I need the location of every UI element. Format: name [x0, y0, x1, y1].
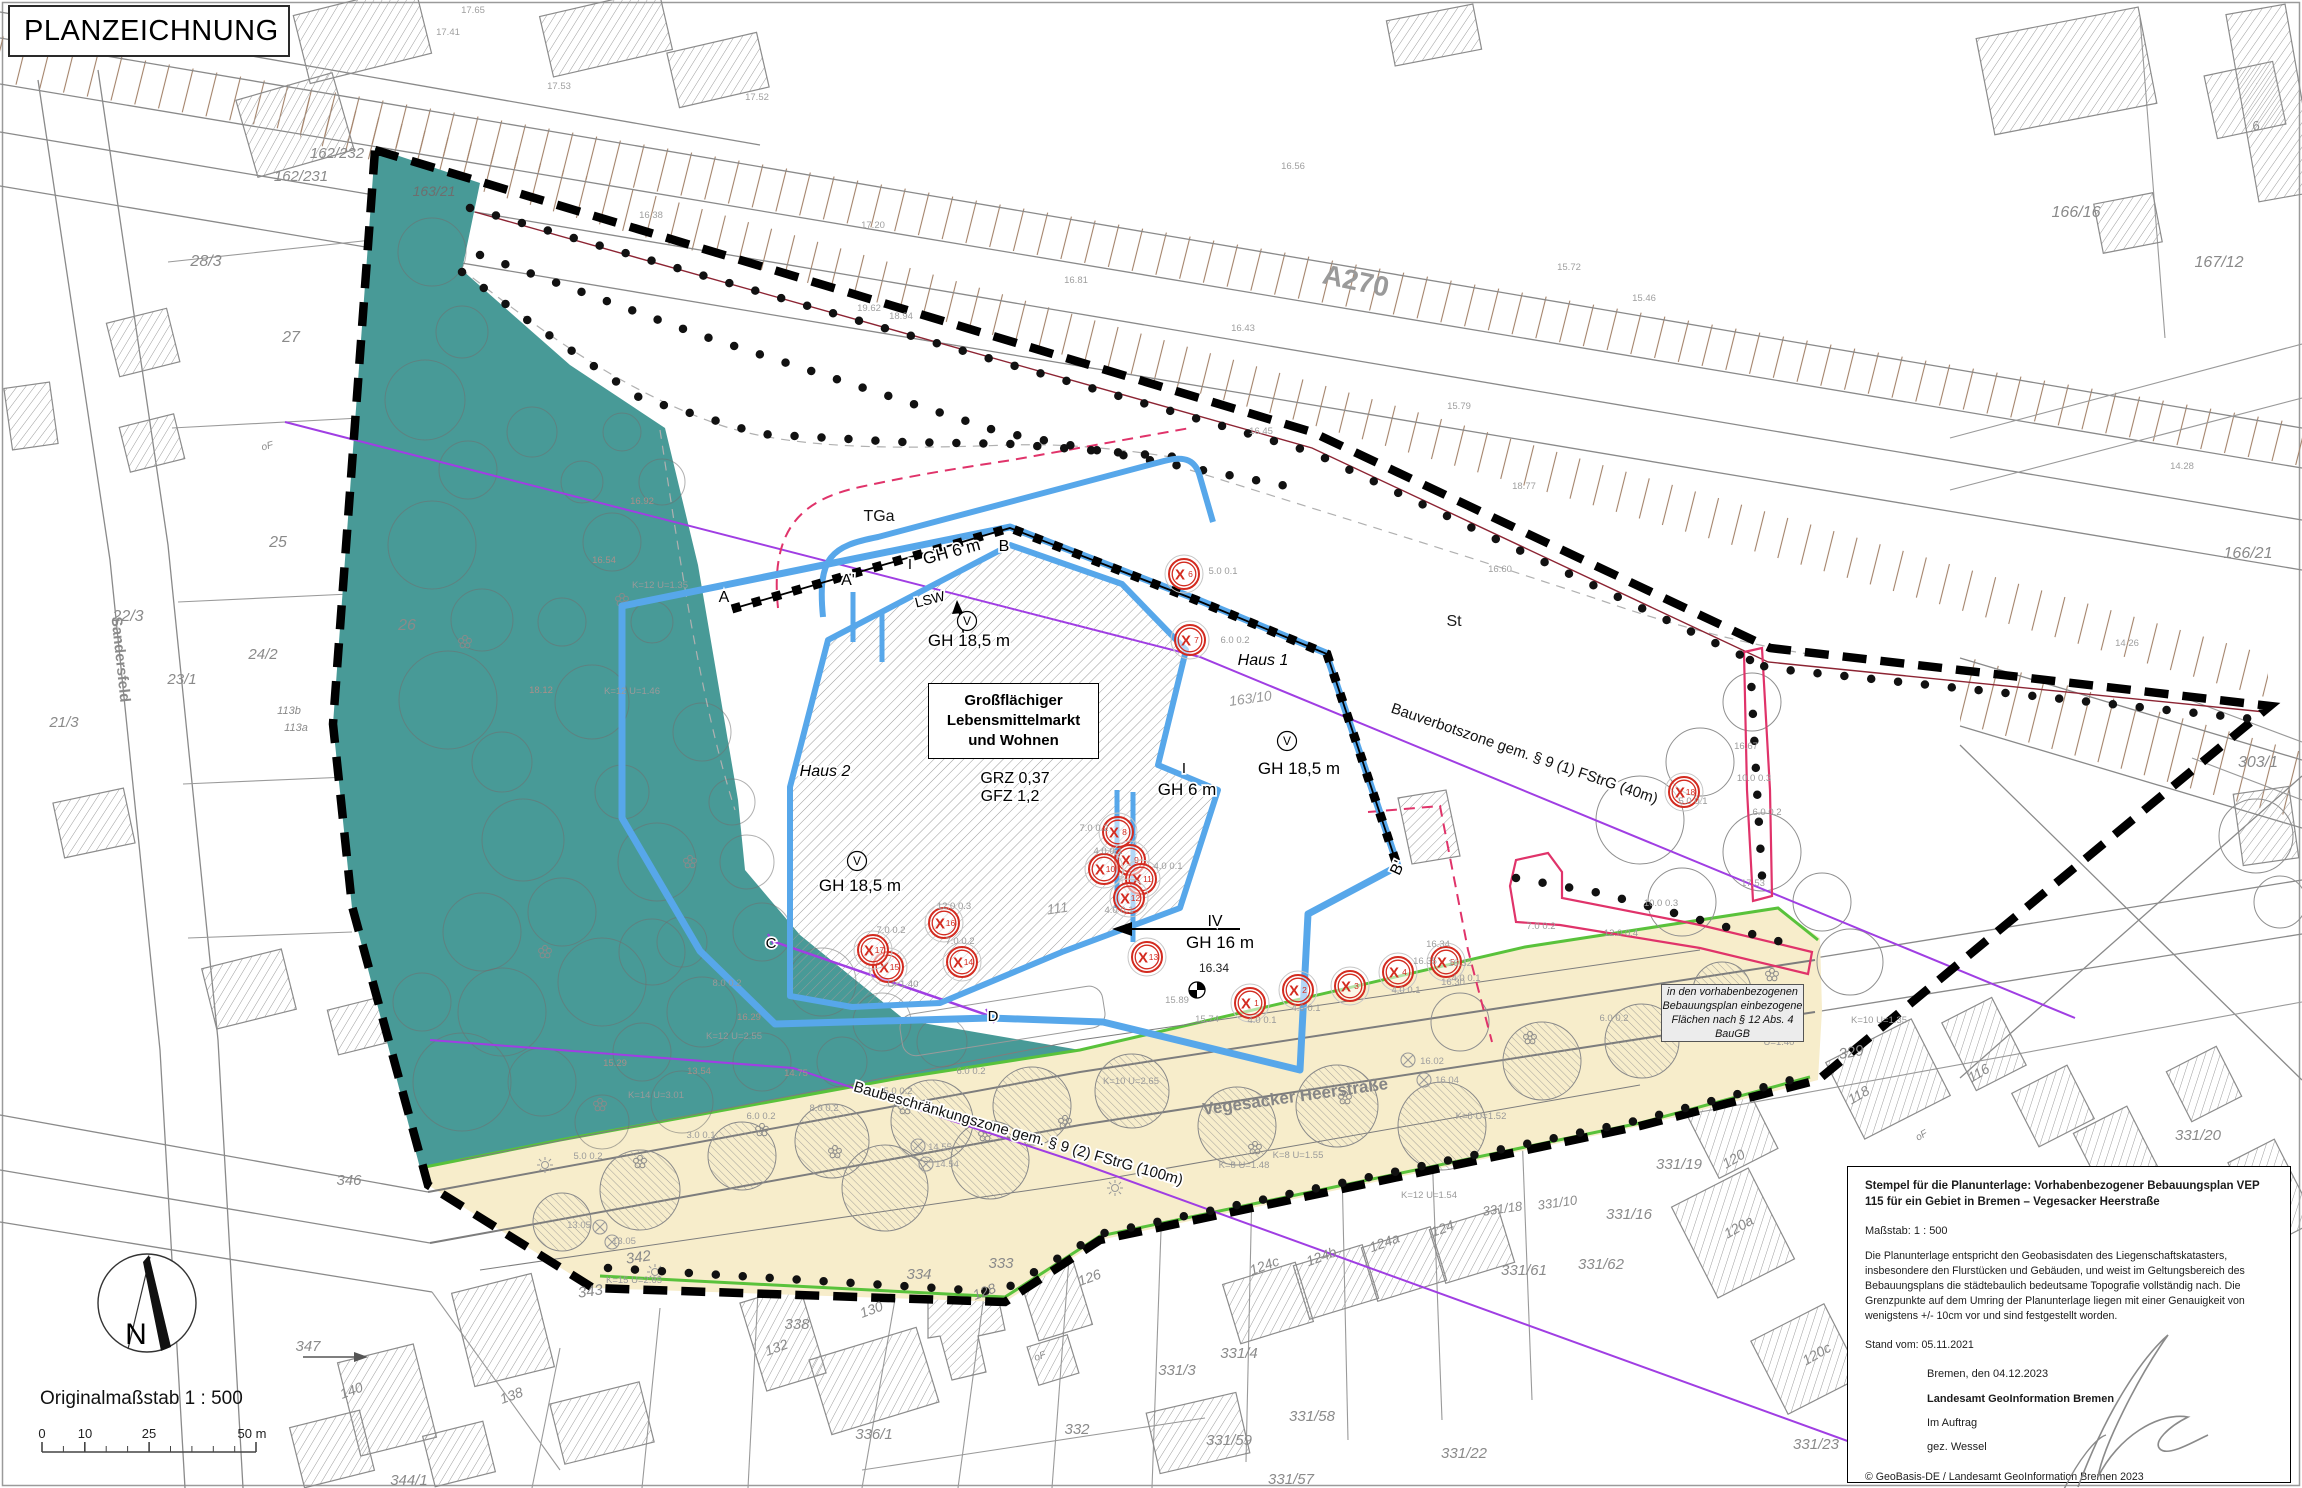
- map-label: 14.54: [935, 1159, 959, 1170]
- map-label: K=12 U=1.46: [604, 686, 660, 697]
- svg-text:X: X: [1389, 965, 1399, 982]
- map-label: GH 18,5 m: [928, 631, 1010, 650]
- map-label: 167/12: [2195, 254, 2244, 271]
- scale-25: 25: [142, 1426, 156, 1441]
- map-label: 331/4: [1220, 1345, 1258, 1362]
- scale-labels: 0 10 25 50 m Originalmaßstab 1 : 500: [38, 1388, 266, 1441]
- svg-text:17: 17: [875, 945, 885, 955]
- stamp-scale: Maßstab: 1 : 500: [1865, 1224, 2273, 1239]
- map-label: C: [766, 935, 777, 952]
- map-label: 13.05: [612, 1236, 636, 1247]
- map-label: 347: [295, 1338, 321, 1355]
- map-label: K=10 U=1.35: [1851, 1015, 1907, 1026]
- svg-text:X: X: [1181, 633, 1191, 650]
- map-label: 7.0 0.2: [945, 936, 974, 947]
- use-label-box: Großflächiger Lebensmittelmarkt und Wohn…: [928, 683, 1099, 759]
- map-label: 16.02: [1420, 1056, 1444, 1067]
- map-label: 12.0 0.4: [1604, 928, 1638, 939]
- svg-text:1: 1: [1254, 998, 1259, 1008]
- map-label: 16.81: [1064, 275, 1088, 286]
- use-label-line2: Lebensmittelmarkt: [929, 711, 1098, 731]
- map-label: 17.53: [547, 81, 571, 92]
- map-label: 113a: [284, 722, 308, 734]
- map-label: 331/58: [1289, 1408, 1336, 1425]
- included-note-line2: Bebauungsplan einbezogene: [1662, 999, 1803, 1013]
- map-label: 338: [784, 1316, 810, 1333]
- map-label: 6.0 0.2: [956, 1066, 985, 1077]
- map-label: 13.05: [567, 1220, 591, 1231]
- map-label: 16.32: [1448, 958, 1472, 969]
- map-label: 7.0 0.2: [1079, 823, 1108, 834]
- map-label: 336/1: [855, 1426, 893, 1443]
- map-label: 15.74: [1195, 1014, 1219, 1025]
- map-label: 3.0 0.1: [686, 1130, 715, 1141]
- map-label: 16.45: [1249, 426, 1273, 437]
- map-label: K=8 U=1.52: [1456, 1111, 1507, 1122]
- map-label: 163/21: [413, 183, 456, 199]
- drawing-title: PLANZEICHNUNG: [24, 15, 279, 48]
- svg-text:2: 2: [1302, 985, 1307, 995]
- map-label: oF: [1914, 1128, 1930, 1144]
- map-label: TGa: [863, 508, 894, 525]
- map-label: 17.20: [861, 220, 885, 231]
- map-label: K=12 U=1.54: [1401, 1190, 1457, 1201]
- map-label: IV: [1207, 913, 1222, 930]
- map-label: K=15 U=2.65: [606, 1275, 662, 1286]
- map-label: oF: [260, 440, 275, 454]
- map-label: 5.0 0.2: [573, 1151, 602, 1162]
- map-label: 23/1: [166, 671, 196, 688]
- map-label: 17.53: [1741, 878, 1765, 889]
- map-label: 162/232: [310, 145, 365, 162]
- svg-text:13: 13: [1149, 952, 1159, 962]
- svg-text:V: V: [963, 614, 971, 628]
- map-label: 18.77: [1512, 481, 1536, 492]
- map-label: 303/1: [2238, 754, 2278, 771]
- map-label: 333: [988, 1255, 1014, 1272]
- map-label: 14.28: [2170, 461, 2194, 472]
- map-label: 6.0 0.2: [1220, 635, 1249, 646]
- map-label: 4.0 0.1: [1291, 1003, 1320, 1014]
- map-label: I: [1182, 760, 1186, 777]
- marker-X14: X14: [943, 943, 981, 981]
- map-label: 16.92: [630, 496, 654, 507]
- map-label: D: [988, 1008, 999, 1025]
- map-label: 4.0 0.1: [1451, 973, 1480, 984]
- map-label: 113b: [277, 705, 301, 717]
- map-label: Haus 1: [1238, 652, 1289, 669]
- north-arrow: N: [98, 1254, 196, 1352]
- scale-50: 50 m: [238, 1426, 267, 1441]
- svg-text:15: 15: [890, 962, 900, 972]
- map-label: 331/16: [1606, 1206, 1653, 1223]
- map-label: 8.0 0.2: [809, 1103, 838, 1114]
- svg-text:10: 10: [1106, 864, 1116, 874]
- plan-drawing-canvas: N 0 10 25 50 m Originalmaßstab 1 : 500 X…: [0, 0, 2302, 1488]
- map-label: 5.0 0.2: [883, 1086, 912, 1097]
- map-label: 17.52: [745, 92, 769, 103]
- scale-0: 0: [38, 1426, 45, 1441]
- stamp-place-date: Bremen, den 04.12.2023: [1927, 1367, 2273, 1382]
- scale-bar: [42, 1442, 256, 1452]
- marker-X17: X17: [854, 931, 892, 969]
- map-label: 16.04: [1435, 1075, 1459, 1086]
- drawing-title-box: PLANZEICHNUNG: [8, 5, 290, 57]
- map-label: 4.0 0.1: [1247, 1015, 1276, 1026]
- map-label: 334: [906, 1266, 931, 1283]
- svg-text:X: X: [864, 943, 874, 960]
- map-label: 4.0 0.1: [1153, 861, 1182, 872]
- svg-text:4: 4: [1402, 967, 1407, 977]
- stamp-stand: Stand vom: 05.11.2021: [1865, 1339, 1974, 1351]
- map-label: 17.41: [436, 27, 460, 38]
- stamp-agency: Landesamt GeoInformation Bremen: [1927, 1392, 2273, 1407]
- map-label: GFZ 1,2: [981, 788, 1040, 805]
- north-label: N: [125, 1318, 147, 1351]
- included-areas-note: in den vorhabenbezogenen Bebauungsplan e…: [1661, 984, 1804, 1042]
- map-label: GH 16 m: [1186, 933, 1254, 952]
- map-label: 346: [336, 1172, 362, 1189]
- map-label: 15.79: [1447, 401, 1471, 412]
- map-label: 13.54: [687, 1066, 711, 1077]
- svg-text:16: 16: [946, 918, 956, 928]
- map-label: 163/10: [1228, 687, 1273, 709]
- map-label: Haus 2: [800, 763, 851, 780]
- stamp-signed: gez. Wessel: [1927, 1440, 2273, 1455]
- svg-text:X: X: [1109, 825, 1119, 842]
- map-label: 7.0 0.2: [1526, 921, 1555, 932]
- map-label: GH 18,5 m: [819, 876, 901, 895]
- map-label: 331/61: [1501, 1262, 1547, 1279]
- map-label: 166/21: [2224, 545, 2273, 562]
- svg-text:6: 6: [1188, 569, 1193, 579]
- map-label: 138: [498, 1384, 526, 1407]
- stamp-title: Stempel für die Planunterlage: Vorhabenb…: [1865, 1179, 2273, 1210]
- map-label: 331/22: [1441, 1445, 1488, 1462]
- map-label: 16.34: [1199, 961, 1229, 975]
- map-label: 14.75: [784, 1068, 808, 1079]
- map-label: 162/231: [274, 168, 328, 185]
- storey-marker-V: V: [1278, 732, 1297, 751]
- svg-text:14: 14: [964, 957, 974, 967]
- map-label: K=12 U=2.55: [706, 1031, 762, 1042]
- map-label: 166/16: [2052, 204, 2101, 221]
- map-label: K=10 U=2.65: [1103, 1076, 1159, 1087]
- map-label: 18.12: [529, 685, 553, 696]
- marker-X7: X7: [1171, 621, 1209, 659]
- map-label: 343: [577, 1281, 605, 1301]
- map-label: B: [999, 538, 1010, 555]
- map-label: 5.0 0.1: [1208, 566, 1237, 577]
- storey-marker-V: V: [958, 612, 977, 631]
- map-label: 26: [397, 617, 416, 634]
- svg-text:V: V: [853, 854, 861, 868]
- map-label: 16.29: [737, 1012, 761, 1023]
- scale-caption: Originalmaßstab 1 : 500: [40, 1388, 243, 1409]
- map-label: 15.72: [1557, 262, 1581, 273]
- map-label: 16.43: [1231, 323, 1255, 334]
- map-label: 16.56: [1281, 161, 1305, 172]
- map-label: 331/19: [1656, 1156, 1703, 1173]
- map-label: 331/10: [1537, 1192, 1579, 1212]
- map-label: B': [1387, 858, 1408, 878]
- svg-text:X: X: [1289, 983, 1299, 1000]
- map-label: A': [841, 572, 855, 589]
- svg-text:X: X: [1437, 955, 1447, 972]
- map-label: 6.0 0.2: [1599, 1013, 1628, 1024]
- map-label: 15.89: [1165, 995, 1189, 1006]
- map-label: 17.65: [461, 5, 485, 16]
- svg-text:V: V: [1283, 734, 1291, 748]
- map-label: St: [1446, 613, 1462, 630]
- map-label: 4.0 0.1: [1391, 985, 1420, 996]
- map-label: 16.60: [1488, 564, 1512, 575]
- stamp-box: Stempel für die Planunterlage: Vorhabenb…: [1847, 1166, 2291, 1483]
- use-label-line1: Großflächiger: [929, 691, 1098, 711]
- svg-text:X: X: [1341, 979, 1351, 996]
- map-label: K=8 U=1.48: [1219, 1160, 1270, 1171]
- map-label: 16.35: [1413, 956, 1437, 967]
- map-label: 19.62: [857, 303, 881, 314]
- scale-10: 10: [78, 1426, 92, 1441]
- map-label: 331/3: [1158, 1362, 1196, 1379]
- map-label: 15.29: [603, 1058, 627, 1069]
- marker-X6: X6: [1165, 555, 1203, 593]
- map-label: 25: [268, 534, 287, 551]
- map-label: 10.0 0.3: [1644, 898, 1678, 909]
- map-label: 331/57: [1268, 1471, 1315, 1488]
- map-label: 342: [625, 1247, 653, 1267]
- map-label: 344/1: [390, 1472, 428, 1488]
- map-label: 4.0 0.1: [1104, 905, 1133, 916]
- map-label: 332: [1064, 1421, 1090, 1438]
- marker-X3: X3: [1331, 967, 1369, 1005]
- map-label: 331/20: [2175, 1127, 2222, 1144]
- map-label: 331/59: [1206, 1432, 1253, 1449]
- svg-text:8: 8: [1122, 827, 1127, 837]
- svg-text:X: X: [1095, 862, 1105, 879]
- svg-text:X: X: [935, 916, 945, 933]
- stamp-by-order: Im Auftrag: [1927, 1416, 2273, 1431]
- map-label: 7.0 0.2: [876, 925, 905, 936]
- map-label: 4.0 0.1: [1093, 846, 1122, 857]
- map-label: K=12 U=1.35: [632, 580, 688, 591]
- map-label: 16.67: [1734, 741, 1758, 752]
- stamp-copyright: © GeoBasis-DE / Landesamt GeoInformation…: [1865, 1470, 2273, 1485]
- included-note-line3: Flächen nach § 12 Abs. 4 BauGB: [1662, 1013, 1803, 1041]
- use-label-line3: und Wohnen: [929, 731, 1098, 751]
- svg-text:3: 3: [1354, 981, 1359, 991]
- map-label: 27: [281, 329, 301, 346]
- map-label: 111: [1046, 899, 1069, 918]
- svg-text:X: X: [1175, 567, 1185, 584]
- map-label: 6.0 0.2: [1752, 807, 1781, 818]
- map-label: I: [908, 556, 912, 573]
- svg-text:X: X: [953, 955, 963, 972]
- included-note-line1: in den vorhabenbezogenen: [1662, 985, 1803, 999]
- map-label: 331/62: [1578, 1256, 1625, 1273]
- map-label: 24/2: [247, 646, 278, 663]
- map-label: 6.0 0.2: [746, 1111, 775, 1122]
- map-label: K=14 U=3.01: [628, 1090, 684, 1101]
- svg-text:11: 11: [1143, 874, 1152, 884]
- svg-text:12: 12: [1131, 893, 1141, 903]
- map-label: 10.0 0.3: [1737, 773, 1771, 784]
- map-label: 331/18: [1482, 1198, 1524, 1218]
- marker-X13: X13: [1128, 938, 1166, 976]
- map-label: 5.0 0.1: [1678, 796, 1707, 807]
- stamp-body: Die Planunterlage entspricht den Geobasi…: [1865, 1249, 2273, 1353]
- map-label: 21/3: [48, 714, 79, 731]
- svg-text:X: X: [1138, 950, 1148, 967]
- map-label: K=8 U=1.55: [1273, 1150, 1324, 1161]
- map-label: GH 6 m: [1158, 780, 1217, 799]
- map-label: 15.46: [1632, 293, 1656, 304]
- map-label: 8.0 0.2: [712, 978, 741, 989]
- map-label: 16.38: [639, 210, 663, 221]
- map-label: 331/23: [1793, 1436, 1840, 1453]
- map-label: 126: [1076, 1266, 1104, 1289]
- map-label: 14.26: [2115, 638, 2139, 649]
- map-label: 18.94: [889, 311, 913, 322]
- map-label: 16.54: [592, 555, 616, 566]
- storey-marker-V: V: [848, 852, 867, 871]
- svg-text:7: 7: [1194, 635, 1199, 645]
- map-label: U=1.40: [888, 979, 919, 990]
- map-label: 12.0 0.3: [937, 901, 971, 912]
- svg-text:X: X: [1241, 996, 1251, 1013]
- map-label: GH 18,5 m: [1258, 759, 1340, 778]
- map-label: 14.55: [928, 1142, 952, 1153]
- map-label: A: [719, 589, 730, 606]
- map-label: 16.34: [1426, 939, 1450, 950]
- map-label: GRZ 0,37: [980, 770, 1049, 787]
- map-label: Sandersfeld: [108, 616, 134, 703]
- map-label: 28/3: [189, 253, 221, 270]
